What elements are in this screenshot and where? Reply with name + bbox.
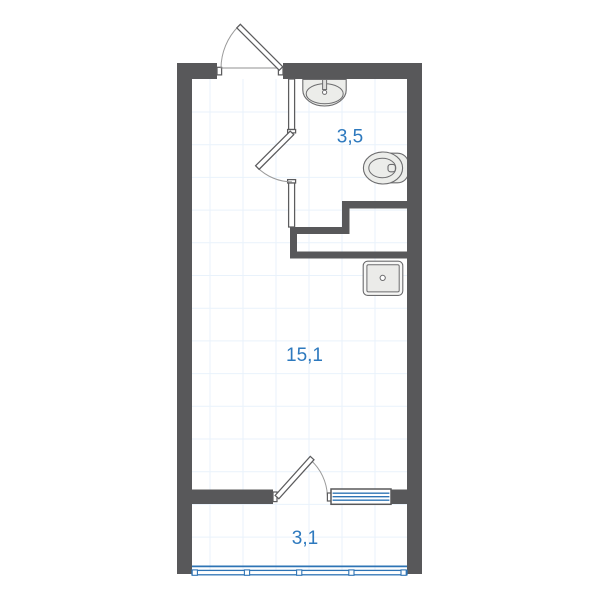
svg-text:15,1: 15,1 [286, 345, 323, 366]
svg-text:3,5: 3,5 [337, 127, 363, 148]
svg-text:3,1: 3,1 [292, 528, 318, 549]
